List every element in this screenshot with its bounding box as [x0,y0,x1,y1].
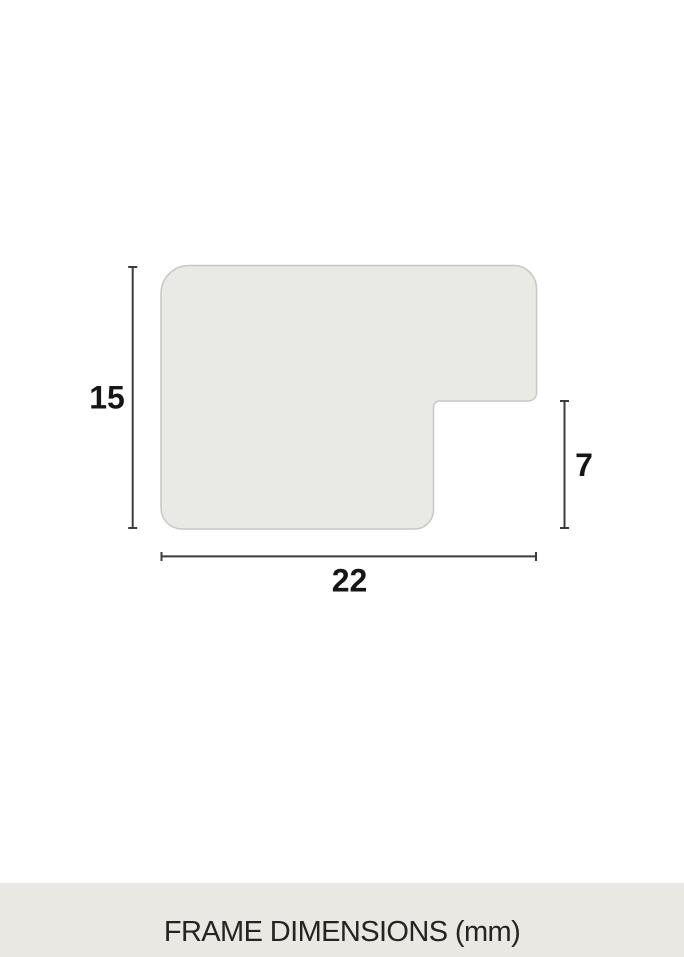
svg-text:FRAME DIMENSIONS (mm): FRAME DIMENSIONS (mm) [164,916,520,948]
svg-text:15: 15 [89,380,125,416]
svg-text:7: 7 [575,447,593,483]
svg-text:22: 22 [332,563,368,599]
